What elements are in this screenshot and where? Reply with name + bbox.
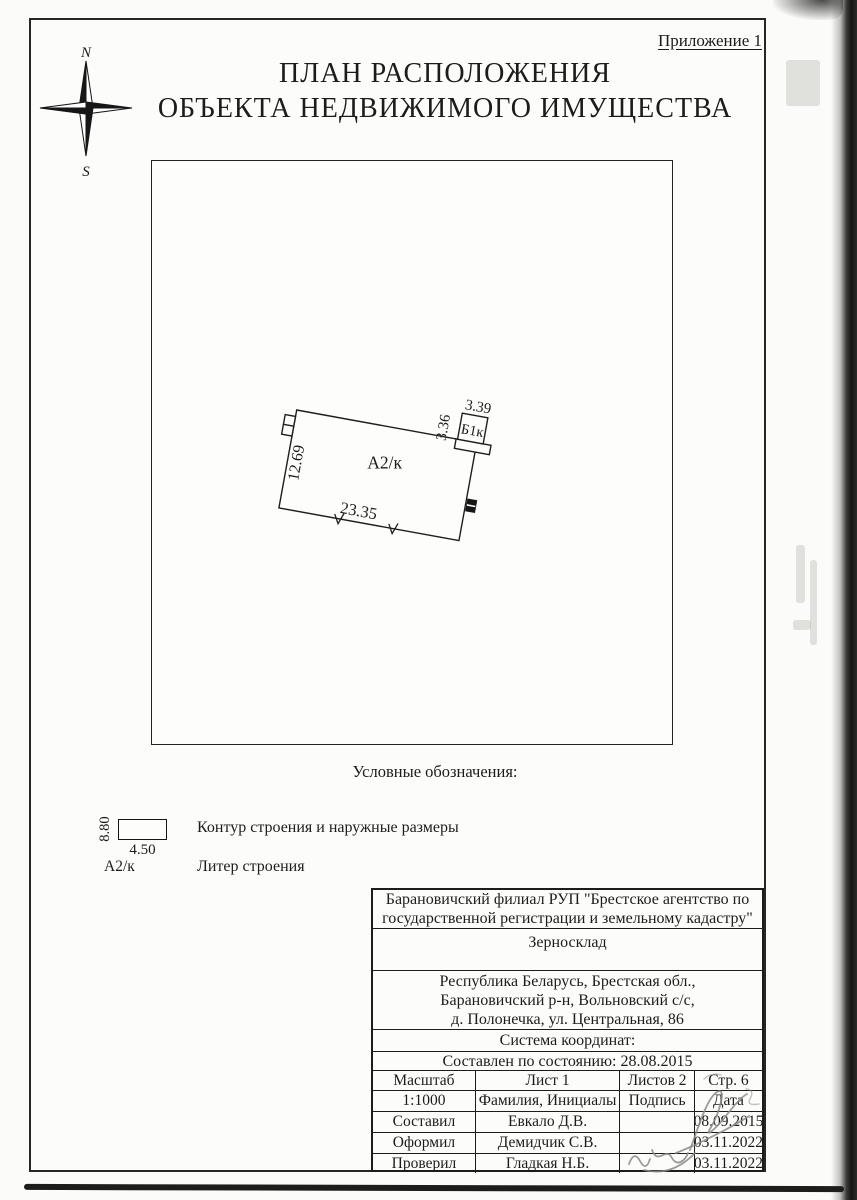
scan-smudge [810, 560, 817, 645]
grid-header-row: Масштаб Лист 1 Листов 2 Стр. 6 [373, 1070, 762, 1090]
role-cell: Проверил [373, 1154, 475, 1173]
scanned-plan-page: Приложение 1 ПЛАН РАСПОЛОЖЕНИЯ ОБЪЕКТА Н… [0, 0, 857, 1200]
scan-smudge [786, 60, 820, 106]
organization-row: Барановичский филиал РУП "Брестское аген… [373, 890, 762, 928]
name-cell: Евкало Д.В. [475, 1112, 619, 1132]
legend-liter-symbol: А2/к [104, 858, 135, 876]
building-outline-drawing: 12.69 23.35 3.36 3.39 Б1к А2/к [151, 160, 673, 745]
scale-value: 1:1000 [373, 1091, 475, 1111]
page-header: Стр. 6 [694, 1071, 762, 1090]
date-cell: 08.09.2015 [694, 1112, 762, 1132]
compass-south-label: S [82, 164, 90, 180]
signature-cell [619, 1133, 694, 1153]
document-title-line1: ПЛАН РАСПОЛОЖЕНИЯ [60, 56, 830, 91]
building-label: А2/к [367, 453, 402, 473]
compiled-row: Составлен по состоянию: 28.08.2015 [373, 1051, 762, 1070]
coordinate-system-label: Система координат: [500, 1031, 636, 1050]
appendix-label: Приложение 1 [580, 31, 762, 51]
table-row-drawn-by: Оформил Демидчик С.В. 03.11.2022 [373, 1132, 762, 1153]
address-line3: д. Полонечка, ул. Центральная, 86 [451, 1010, 684, 1029]
name-cell: Гладкая Н.Б. [475, 1154, 619, 1173]
sheet-header: Лист 1 [475, 1071, 619, 1090]
organization-line2: государственной регистрации и земельному… [382, 909, 753, 928]
scale-header: Масштаб [373, 1071, 475, 1090]
role-cell: Оформил [373, 1133, 475, 1153]
scan-bottom-edge [24, 1184, 844, 1192]
object-name-row: Зерносклад [373, 928, 762, 970]
address-line1: Республика Беларусь, Брестская обл., [440, 972, 696, 991]
document-title: ПЛАН РАСПОЛОЖЕНИЯ ОБЪЕКТА НЕДВИЖИМОГО ИМ… [60, 56, 830, 126]
table-row-compiled-by: Составил Евкало Д.В. 08.09.2015 [373, 1111, 762, 1132]
coordinate-system-row: Система координат: [373, 1029, 762, 1051]
name-cell: Демидчик С.В. [475, 1133, 619, 1153]
grid-subheader-row: 1:1000 Фамилия, Инициалы Подпись Дата [373, 1090, 762, 1111]
compass-north-label: N [80, 45, 92, 61]
date-cell: 03.11.2022 [694, 1133, 762, 1153]
role-cell: Составил [373, 1112, 475, 1132]
signature-column-header: Подпись [619, 1091, 694, 1111]
organization-line1: Барановичский филиал РУП "Брестское аген… [386, 890, 749, 909]
legend-contour-sample [118, 819, 167, 840]
address-row: Республика Беларусь, Брестская обл., Бар… [373, 970, 762, 1029]
legend-contour-label: Контур строения и наружные размеры [197, 819, 459, 837]
date-column-header: Дата [694, 1091, 762, 1111]
compass-rose-icon: N S [33, 44, 139, 180]
document-title-line2: ОБЪЕКТА НЕДВИЖИМОГО ИМУЩЕСТВА [60, 91, 830, 126]
address-line2: Барановичский р-н, Вольновский с/с, [440, 991, 694, 1010]
signature-cell [619, 1112, 694, 1132]
table-row-checked-by: Проверил Гладкая Н.Б. 03.11.2022 [373, 1153, 762, 1173]
legend-sample-width: 4.50 [118, 842, 167, 859]
scan-edge-shadow [831, 0, 857, 1200]
legend-sample-height: 8.80 [97, 808, 115, 850]
legend-title: Условные обозначения: [280, 762, 590, 782]
date-cell: 03.11.2022 [694, 1154, 762, 1173]
name-column-header: Фамилия, Инициалы [475, 1091, 619, 1111]
scan-smudge [793, 620, 811, 630]
compiled-label: Составлен по состоянию: 28.08.2015 [443, 1052, 693, 1071]
scan-smudge [796, 545, 805, 603]
title-block-table: Барановичский филиал РУП "Брестское аген… [371, 888, 764, 1172]
object-name: Зерносклад [528, 933, 606, 952]
sheets-total-header: Листов 2 [619, 1071, 694, 1090]
legend-liter-label: Литер строения [197, 858, 305, 876]
scan-corner-shadow [773, 0, 843, 20]
signature-cell [619, 1154, 694, 1173]
